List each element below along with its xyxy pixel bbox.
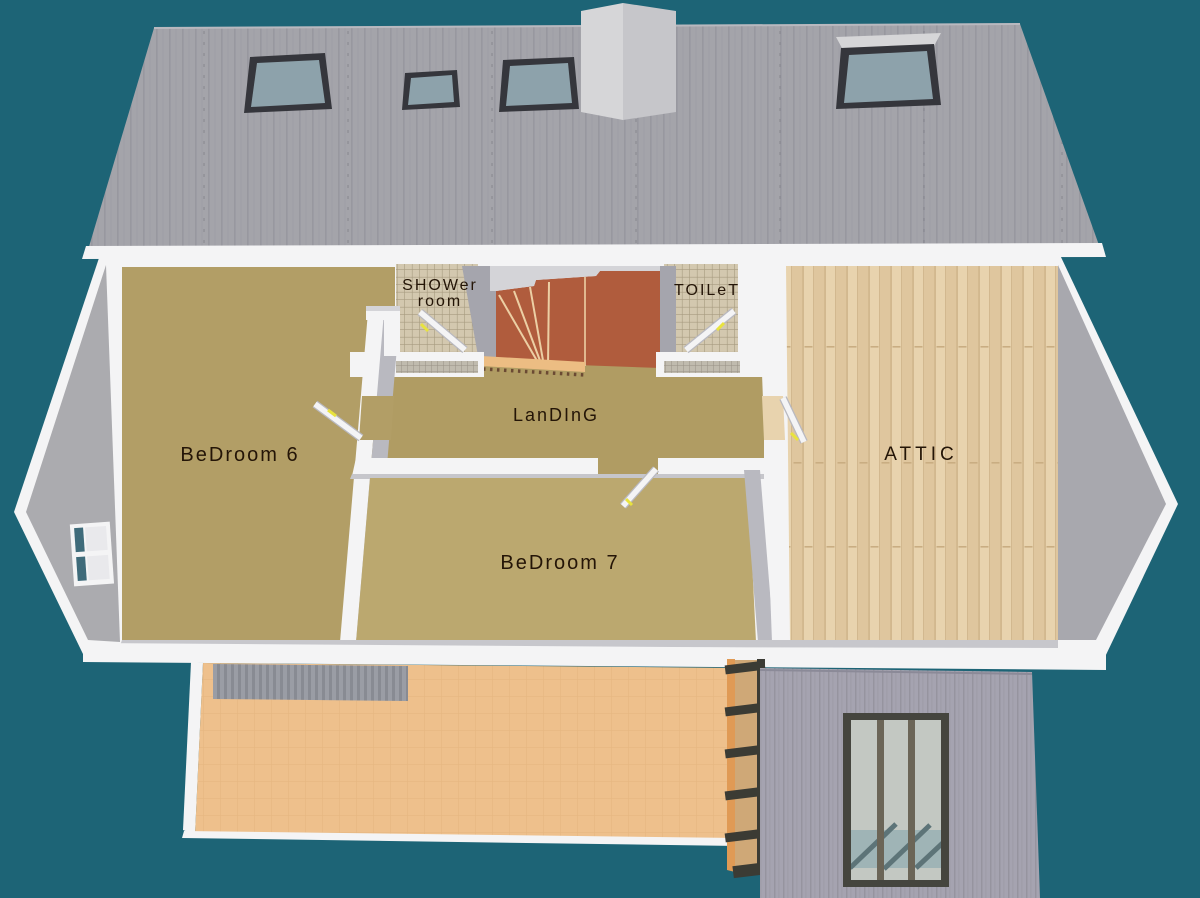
annex-glass-door bbox=[843, 713, 949, 887]
skylight-4 bbox=[836, 33, 941, 109]
attic-label: ATTIC bbox=[884, 444, 957, 465]
toilet-label: TOILeT bbox=[674, 282, 740, 299]
door-mullion-1 bbox=[877, 720, 884, 880]
skylight-2 bbox=[402, 70, 460, 110]
bedroom7-north-wall bbox=[350, 458, 764, 479]
shower-room-label-line1: SHOWer bbox=[402, 277, 478, 294]
floor-plan-canvas: SHOWer room TOILeT LanDInG BeDroom 6 BeD… bbox=[0, 0, 1200, 898]
stairs bbox=[462, 266, 676, 375]
terrace bbox=[182, 662, 738, 846]
chimney bbox=[581, 3, 676, 120]
skylight-3 bbox=[499, 57, 579, 112]
annex-building bbox=[760, 668, 1040, 898]
landing-label: LanDInG bbox=[513, 405, 599, 425]
door-mullion-2 bbox=[908, 720, 915, 880]
bedroom7-label: BeDroom 7 bbox=[500, 552, 619, 574]
shower-wall-tile-face bbox=[396, 361, 478, 373]
bedroom6-door-opening bbox=[359, 396, 394, 440]
bedroom6-label: BeDroom 6 bbox=[180, 444, 299, 466]
toilet-wall-tile-face bbox=[664, 361, 740, 373]
skylight-1 bbox=[244, 53, 332, 113]
terrace-mat bbox=[213, 664, 408, 701]
floor-plan-render: SHOWer room TOILeT LanDInG BeDroom 6 BeD… bbox=[0, 0, 1200, 898]
gable-window-left bbox=[70, 522, 114, 587]
shower-room-label-line2: room bbox=[418, 293, 462, 310]
